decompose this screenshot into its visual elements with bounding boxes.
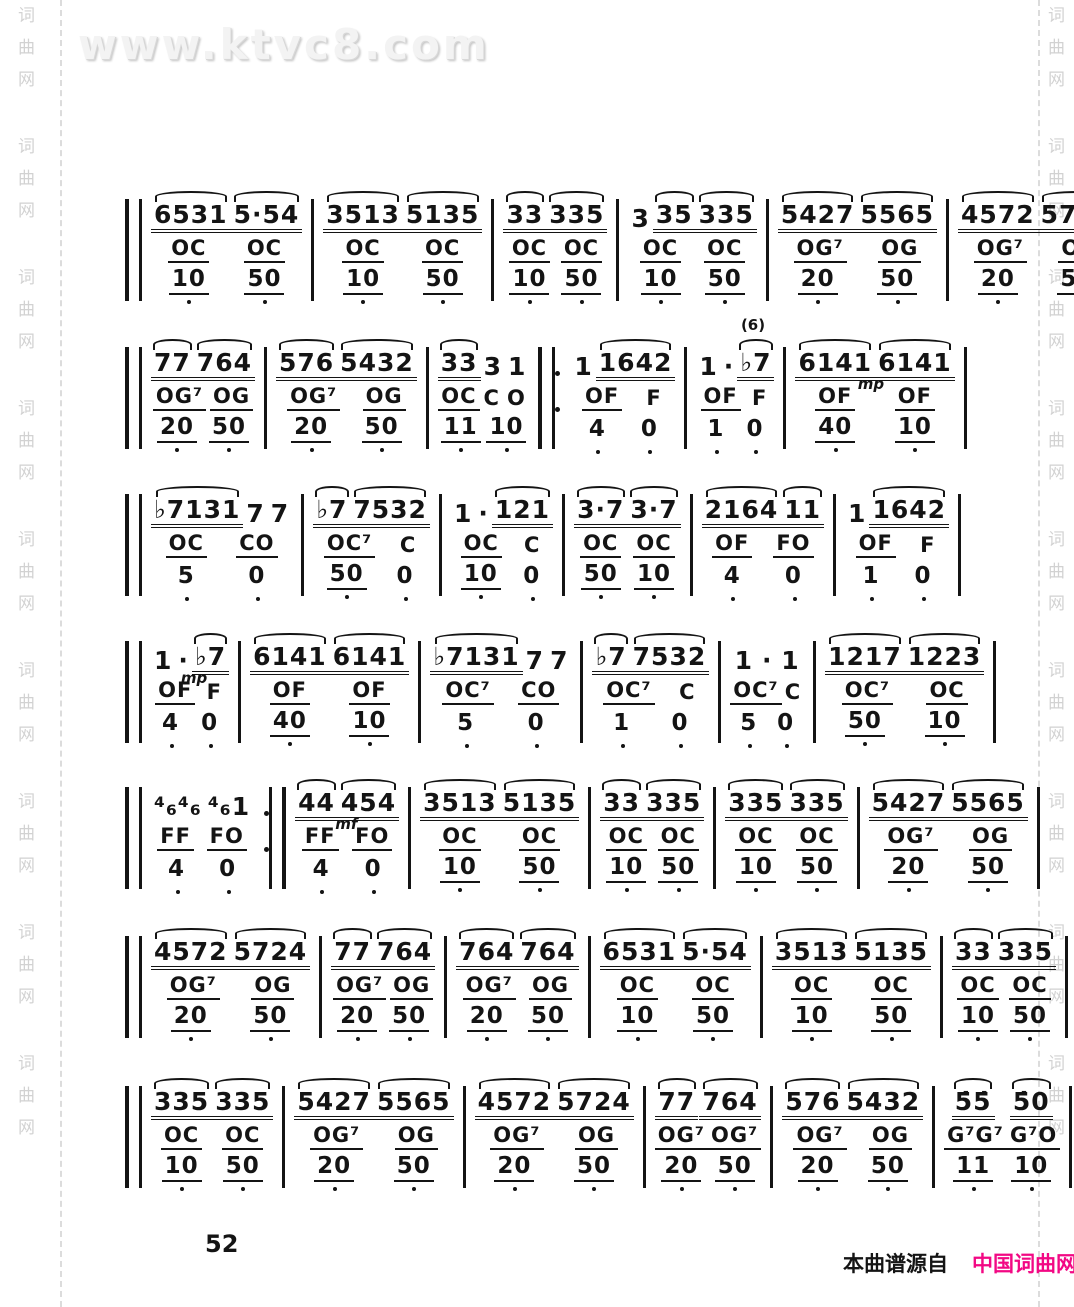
measure: (6)1·♭7OFF10: [689, 333, 781, 451]
bass-token: 4: [310, 857, 333, 883]
melody-token: 454: [338, 789, 399, 821]
measure: mp1·♭7OFF40: [144, 627, 236, 745]
side-watermark-char: 曲: [1048, 564, 1065, 581]
melody-token: 576: [782, 1088, 843, 1120]
bass-token: 10: [440, 855, 480, 883]
bass-line: 1050: [772, 1000, 931, 1032]
melody-token: 3513: [772, 938, 852, 970]
bass-line: 2050: [294, 1150, 453, 1182]
melody-token: 5565: [374, 1088, 454, 1120]
bass-line: 2050: [782, 1150, 923, 1182]
chord-token: OG: [529, 974, 572, 1000]
bass-token: 50: [1010, 1004, 1050, 1032]
side-watermark-char: 网: [1048, 858, 1065, 875]
chord-token: G⁷G⁷: [944, 1124, 1007, 1150]
chord-line: OCOC: [600, 970, 751, 1000]
chord-token: OC: [561, 237, 602, 263]
bass-token: 11: [441, 415, 481, 443]
bass-token: 10: [617, 1004, 657, 1032]
barline-single: [770, 1086, 773, 1188]
bass-line: 1050: [600, 1000, 751, 1032]
melody-line: 5765432: [276, 343, 417, 381]
chord-token: OC: [606, 825, 647, 851]
melody-token: ·: [175, 647, 192, 675]
melody-line: 45725724: [958, 195, 1074, 233]
melody-line: 77764: [151, 343, 255, 381]
melody-token: 1223: [905, 643, 985, 675]
chord-token: OC: [439, 825, 480, 851]
bass-line: 2050: [475, 1150, 634, 1182]
melody-line: 45725724: [475, 1082, 634, 1120]
barline-single: [940, 936, 943, 1038]
melody-token: 33: [503, 201, 546, 233]
barline-single: [319, 936, 322, 1038]
barline-single: [643, 1086, 646, 1188]
melody-token: 7: [547, 647, 571, 675]
measure: 3·73·7OCOC5010: [567, 480, 688, 598]
melody-token: 77: [655, 1088, 698, 1120]
bass-line: 1050: [628, 263, 756, 295]
bass-token: 20: [978, 267, 1018, 295]
bass-token: 40: [815, 415, 855, 443]
chord-line: FFFO: [151, 821, 253, 851]
bass-token: 50: [693, 1004, 733, 1032]
chord-token: OC: [640, 237, 681, 263]
melody-line: 11642: [571, 343, 675, 381]
melody-line: 77764: [331, 932, 435, 970]
chord-line: OG⁷OG: [958, 233, 1074, 263]
bass-token: 50: [394, 1154, 434, 1182]
barline-single: [718, 641, 721, 743]
system-row: 65315·54OCOC105035135135OCOC105033335OCO…: [123, 185, 871, 303]
melody-token: ·: [475, 500, 492, 528]
melody-line: 216411: [702, 490, 824, 528]
side-watermark-char: 词: [18, 925, 35, 942]
barline-single: [713, 787, 716, 889]
chord-line: OC⁷CO: [430, 675, 571, 705]
melody-token: 11: [781, 496, 824, 528]
side-watermark-char: 词: [18, 1056, 35, 1073]
chord-line: OFF: [845, 528, 949, 558]
melody-line: 335335: [628, 195, 756, 233]
melody-line: 764764: [456, 932, 578, 970]
side-watermark-char: 词: [1048, 8, 1065, 25]
chord-line: OFF: [571, 381, 675, 411]
chord-token: OG⁷: [463, 974, 516, 1000]
side-watermark-char: 网: [1048, 465, 1065, 482]
barline-single: [238, 641, 241, 743]
chord-token: F: [917, 534, 938, 558]
chord-token: OF: [856, 532, 896, 558]
side-watermark-char: 曲: [18, 40, 35, 57]
melody-token: 77: [331, 938, 374, 970]
melody-token: 576: [276, 349, 337, 381]
chord-token: FO: [773, 532, 813, 558]
bass-token: 50: [658, 855, 698, 883]
bass-token: 10: [958, 1004, 998, 1032]
chord-line: OG⁷OG: [869, 821, 1028, 851]
melody-token: 3·7: [627, 496, 680, 528]
chord-token: C: [481, 387, 503, 411]
melody-token: 1: [845, 500, 869, 528]
chord-token: CO: [518, 679, 559, 705]
measure: 54275565OG⁷OG2050: [771, 185, 944, 303]
chord-line: OC⁷C: [730, 675, 804, 705]
chord-token: OG: [395, 1124, 438, 1150]
bass-token: 0: [782, 564, 805, 590]
side-watermark-group: 词曲网: [18, 1056, 35, 1137]
bass-token: 20: [798, 267, 838, 295]
bass-token: 20: [888, 855, 928, 883]
chord-token: OG: [390, 974, 433, 1000]
melody-line: 3·73·7: [574, 490, 681, 528]
bass-token: 20: [157, 415, 197, 443]
bass-token: 10: [169, 267, 209, 295]
side-watermark-char: 曲: [18, 302, 35, 319]
melody-line: 54275565: [778, 195, 937, 233]
bass-line: 40: [295, 851, 399, 883]
melody-token: ♭7131: [151, 496, 243, 528]
measure: 77764OG⁷OG2050: [144, 333, 262, 451]
footer-source-site-link[interactable]: 中国词曲网: [972, 1248, 1074, 1278]
side-watermark-char: 网: [18, 72, 35, 89]
side-watermark-char: 曲: [1048, 302, 1065, 319]
chord-token: OC: [438, 385, 479, 411]
barline-single: [562, 494, 565, 596]
chord-token: OC: [617, 974, 658, 1000]
system-row: mp1·♭7OFF4061416141OFOF4010♭713177OC⁷CO5…: [123, 627, 871, 745]
side-watermark-char: 词: [1048, 401, 1065, 418]
chord-line: OCOC: [151, 1120, 273, 1150]
melody-token: 764: [699, 1088, 760, 1120]
bass-token: 0: [743, 417, 766, 443]
bass-token: 10: [641, 267, 681, 295]
bass-line: 2050: [331, 1000, 435, 1032]
melody-token: 4572: [958, 201, 1038, 233]
bass-token: 10: [792, 1004, 832, 1032]
measure: 77764OG⁷OG⁷2050: [648, 1072, 769, 1190]
side-watermark-group: 词曲网: [1048, 8, 1065, 89]
bass-line: 40: [151, 851, 253, 883]
side-watermark-char: 曲: [1048, 40, 1065, 57]
chord-line: OCOC: [323, 233, 482, 263]
chord-line: OG⁷OG: [782, 1120, 923, 1150]
chord-line: OFF: [696, 381, 774, 411]
barline-double: [125, 641, 142, 743]
chord-line: OCOC: [628, 233, 756, 263]
measure: 5765432OG⁷OG2050: [269, 333, 424, 451]
melody-token: 3: [481, 353, 505, 381]
melody-token: 3513: [323, 201, 403, 233]
bass-token: 10: [349, 709, 389, 737]
melody-token: 5432: [844, 1088, 924, 1120]
side-watermark-char: 网: [1048, 596, 1065, 613]
bass-token: 10: [343, 267, 383, 295]
chord-token: OG⁷: [167, 974, 220, 1000]
barline-single: [311, 199, 314, 301]
side-watermark-char: 词: [1048, 663, 1065, 680]
melody-token: 7532: [350, 496, 430, 528]
bass-line: 40: [702, 558, 824, 590]
side-watermark-char: 网: [18, 858, 35, 875]
melody-line: ♭713177: [430, 637, 571, 675]
chord-token: OC: [580, 532, 621, 558]
melody-token: 5565: [948, 789, 1028, 821]
bass-token: 50: [561, 267, 601, 295]
chord-line: OG⁷OG: [276, 381, 417, 411]
measure: 35135135OCOC1050: [413, 773, 586, 891]
measure: 65315·54OCOC1050: [144, 185, 309, 303]
bass-token: 50: [327, 562, 367, 590]
bass-line: 1110: [438, 411, 530, 443]
chord-token: OG: [251, 974, 294, 1000]
melody-token: 335: [546, 201, 607, 233]
chord-token: OC: [519, 825, 560, 851]
chord-token: FO: [352, 825, 392, 851]
bass-token: 20: [314, 1154, 354, 1182]
bass-line: 1050: [151, 1150, 273, 1182]
side-watermark-char: 曲: [1048, 433, 1065, 450]
chord-token: OC: [166, 532, 207, 558]
footer-source-prefix: 本曲谱源自: [843, 1248, 948, 1278]
bass-line: 2050: [958, 263, 1074, 295]
bass-token: 50: [250, 1004, 290, 1032]
bass-token: 50: [877, 267, 917, 295]
melody-token: 5724: [554, 1088, 634, 1120]
melody-line: 1·♭7: [151, 637, 229, 675]
bass-token: 10: [461, 562, 501, 590]
bass-line: 500: [313, 558, 430, 590]
bass-line: 4010: [795, 411, 954, 443]
melody-line: ♭77532: [592, 637, 709, 675]
side-watermark-group: 词曲网: [18, 925, 35, 1006]
bass-line: 1110: [944, 1150, 1060, 1182]
side-watermark-char: 词: [18, 663, 35, 680]
chord-token: OF: [895, 385, 935, 411]
side-watermark-group: 词曲网: [18, 139, 35, 220]
side-watermark-char: 词: [18, 270, 35, 287]
bass-token: 10: [895, 415, 935, 443]
melody-token: 1: [571, 353, 595, 381]
bass-token: 50: [845, 709, 885, 737]
melody-line: 35135135: [323, 195, 482, 233]
bass-line: 2050: [869, 851, 1028, 883]
chord-token: OF: [270, 679, 310, 705]
chord-token: OG⁷: [793, 1124, 846, 1150]
melody-token: 5·54: [231, 201, 303, 233]
melody-token: ♭7: [192, 643, 229, 675]
bass-token: 0: [912, 564, 935, 590]
chord-line: OG⁷OG⁷: [655, 1120, 762, 1150]
side-watermark-group: 词曲网: [18, 401, 35, 482]
melody-line: 1·♭7: [696, 343, 774, 381]
left-dashed-rule: [60, 0, 62, 1307]
side-watermark-char: 词: [18, 532, 35, 549]
melody-token: 4572: [151, 938, 231, 970]
melody-token: 5565: [857, 201, 937, 233]
chord-token: OC: [957, 974, 998, 1000]
measure: 5765432OG⁷OG2050: [775, 1072, 930, 1190]
side-watermark-char: 词: [1048, 794, 1065, 811]
melody-token: ·: [721, 353, 738, 381]
chord-token: OC: [222, 1124, 263, 1150]
measure: 33335OCOC1050: [496, 185, 614, 303]
melody-token: 5̇0: [1010, 1088, 1053, 1120]
bass-token: 50: [519, 855, 559, 883]
melody-token: ⁴₆1: [205, 793, 253, 821]
bass-token: 0: [362, 857, 385, 883]
measure: 45725724OG⁷OG2050: [951, 185, 1074, 303]
chord-token: FF: [302, 825, 339, 851]
side-watermark-char: 网: [18, 465, 35, 482]
bass-line: 2050: [655, 1150, 762, 1182]
chord-token: OC⁷: [842, 679, 893, 705]
side-watermark-group: 词曲网: [18, 270, 35, 351]
bass-line: 10: [845, 558, 949, 590]
chord-token: C: [782, 681, 804, 705]
measure: 335335OCOC1050: [718, 773, 854, 891]
chord-line: OC⁷C: [592, 675, 709, 705]
bass-token: 50: [223, 1154, 263, 1182]
side-watermark-char: 网: [18, 989, 35, 1006]
melody-token: 5427: [869, 789, 949, 821]
bass-line: 2050: [151, 1000, 310, 1032]
chord-token: F: [204, 681, 225, 705]
bass-line: 50: [730, 705, 804, 737]
melody-token: ·: [759, 647, 776, 675]
chord-line: OCOC: [772, 970, 931, 1000]
melody-token: 35: [653, 201, 696, 233]
chord-token: OF: [582, 385, 622, 411]
chord-token: C: [521, 534, 543, 558]
chord-token: OC⁷: [324, 532, 375, 558]
chord-token: OF: [155, 679, 195, 705]
melody-token: 6141: [795, 349, 875, 381]
bass-token: 10: [925, 709, 965, 737]
bass-line: 2050: [151, 411, 255, 443]
bass-line: 1050: [503, 263, 607, 295]
barline-single: [684, 347, 687, 449]
bass-token: 10: [606, 855, 646, 883]
chord-token: OC: [633, 532, 674, 558]
melody-token: 1: [451, 500, 475, 528]
barline-single: [444, 936, 447, 1038]
chord-line: OC⁷C: [313, 528, 430, 558]
barline-double: [125, 199, 142, 301]
melody-token: 5432: [337, 349, 417, 381]
melody-token: 6141: [330, 643, 410, 675]
bass-token: 50: [244, 267, 284, 295]
barline-single: [833, 494, 836, 596]
barline-single: [932, 1086, 935, 1188]
chord-token: OF: [815, 385, 855, 411]
melody-line: 35135135: [772, 932, 931, 970]
barline-single: [964, 347, 967, 449]
side-watermark-char: 网: [1048, 72, 1065, 89]
chord-token: OC: [161, 1124, 202, 1150]
chord-line: OCOC: [725, 821, 847, 851]
measure: 335335OCOC1050: [144, 1072, 280, 1190]
melody-line: 65315·54: [600, 932, 751, 970]
barline-single: [946, 199, 949, 301]
measure: 1·121OCC100: [444, 480, 560, 598]
bass-token: 4: [721, 564, 744, 590]
barline-single: [580, 641, 583, 743]
bass-token: 0: [394, 564, 417, 590]
chord-token: FO: [207, 825, 247, 851]
measure: 33335OCOC1050: [945, 922, 1063, 1040]
melody-line: 11642: [845, 490, 949, 528]
chord-token: OF: [349, 679, 389, 705]
measure: 1·1OC⁷C50: [723, 627, 811, 745]
side-watermark-char: 词: [1048, 532, 1065, 549]
measure: 35135135OCOC1050: [316, 185, 489, 303]
melody-line: 12171223: [825, 637, 984, 675]
bass-token: 5: [737, 711, 760, 737]
measure: 45725724OG⁷OG2050: [144, 922, 317, 1040]
bass-token: 50: [705, 267, 745, 295]
bass-line: 1050: [725, 851, 847, 883]
melody-token: 1642: [869, 496, 949, 528]
melody-line: ♭713177: [151, 490, 292, 528]
bass-token: 20: [467, 1004, 507, 1032]
measure: mf44454FFFO40: [288, 773, 406, 891]
left-side-watermark-column: 词曲网词曲网词曲网词曲网词曲网词曲网词曲网词曲网词曲网: [18, 0, 35, 1307]
chord-token: OC: [926, 679, 967, 705]
chord-line: OCOC: [574, 528, 681, 558]
chord-token: OC: [692, 974, 733, 1000]
measure-annotation: (6): [741, 316, 765, 334]
chord-token: OC: [244, 237, 285, 263]
melody-token: 7: [243, 500, 267, 528]
chord-token: OG⁷: [333, 974, 386, 1000]
melody-line: ⁴₆⁴₆⁴₆1: [151, 783, 253, 821]
side-watermark-char: 网: [18, 203, 35, 220]
melody-token: 764: [456, 938, 517, 970]
side-watermark-char: 词: [18, 794, 35, 811]
side-watermark-char: 曲: [18, 564, 35, 581]
measure: ⁴₆⁴₆⁴₆1FFFO40: [144, 773, 260, 891]
bass-line: 2050: [276, 411, 417, 443]
melody-token: 7: [523, 647, 547, 675]
side-watermark-char: 词: [18, 8, 35, 25]
chord-token: F: [643, 387, 664, 411]
chord-token: OG⁷: [794, 237, 847, 263]
bass-token: 50: [1057, 267, 1074, 295]
measure: 335335OCOC1050: [621, 185, 763, 303]
melody-token: 6531: [151, 201, 231, 233]
chord-token: OC: [461, 532, 502, 558]
measure: ♭713177OC⁷CO50: [423, 627, 578, 745]
melody-token: 335: [212, 1088, 273, 1120]
chord-token: OF: [712, 532, 752, 558]
melody-line: 335335: [151, 1082, 273, 1120]
chord-token: C: [676, 681, 698, 705]
melody-token: 335: [696, 201, 757, 233]
chord-token: OC⁷: [603, 679, 654, 705]
chord-token: OG: [210, 385, 253, 411]
bass-token: 0: [638, 417, 661, 443]
bass-token: 11: [953, 1154, 993, 1182]
bass-token: 20: [337, 1004, 377, 1032]
chord-token: OG: [869, 1124, 912, 1150]
measure: 54275565OG⁷OG2050: [287, 1072, 460, 1190]
barline-single: [282, 1086, 285, 1188]
melody-token: 335: [151, 1088, 212, 1120]
melody-token: 2164: [702, 496, 782, 528]
chord-token: G⁷O: [1007, 1124, 1060, 1150]
side-watermark-char: 曲: [18, 171, 35, 188]
